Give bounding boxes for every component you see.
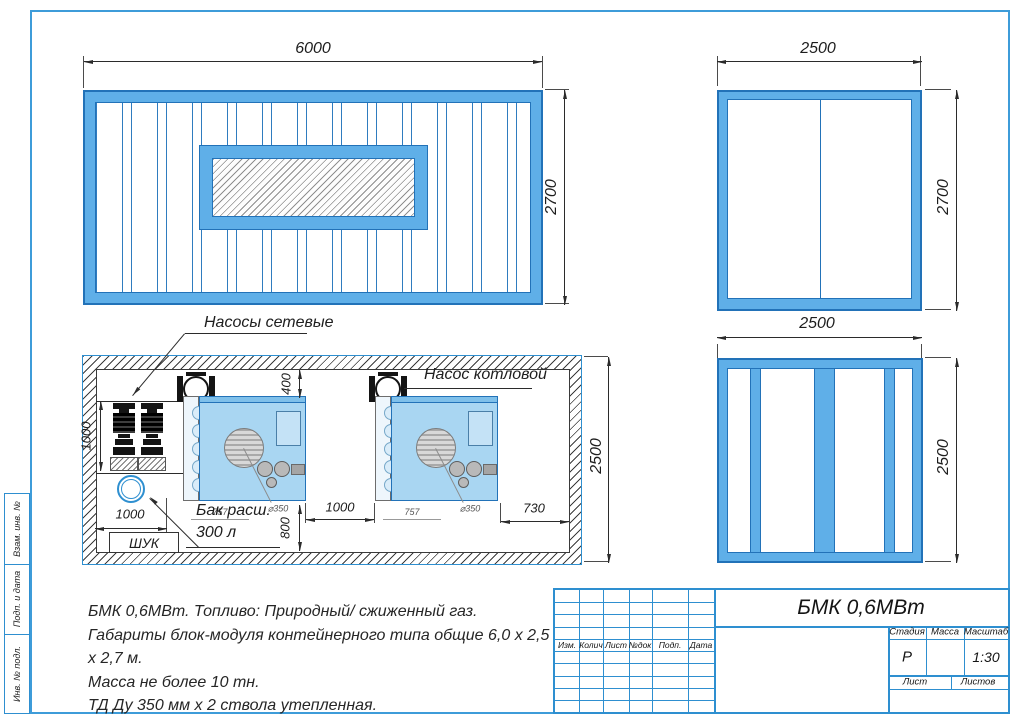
boiler-top-rail (392, 397, 497, 403)
control-box (276, 411, 301, 446)
note-line: Габариты блок-модуля контейнерного типа … (88, 624, 558, 671)
side-panel-area (727, 368, 913, 553)
extension-line (925, 89, 951, 90)
title-block-line (888, 639, 1008, 640)
side-view-panels (717, 358, 923, 563)
dim-between-boilers: 1000 (326, 500, 355, 515)
extension-line (925, 561, 951, 562)
label-underline (186, 547, 280, 548)
dim-boiler-top-gap: 400 (279, 373, 294, 395)
control-box (468, 411, 493, 446)
extension-line (584, 561, 608, 562)
dim-right-gap: 730 (523, 501, 545, 516)
boiler-top-rail (200, 397, 305, 403)
dim-line-tank-offset (95, 528, 167, 529)
burner-arm (483, 464, 497, 475)
dim-tank-offset: 1000 (116, 507, 145, 522)
dim-side-top-width: 2500 (800, 40, 836, 58)
sheets-label: Листов (961, 677, 996, 688)
extension-line (584, 356, 608, 357)
title-block: Изм. Колич Лист №док Подп. Дата БМК 0,6М… (553, 588, 1010, 714)
dim-line-front-width (84, 61, 542, 62)
title-block-line (926, 626, 927, 675)
rev-col-ndok: №док (629, 640, 652, 650)
dim-side-bottom-height: 2500 (935, 439, 953, 475)
title-block-line (555, 700, 714, 701)
dim-line-boiler-bottom-gap (299, 505, 300, 551)
notes-block: БМК 0,6МВт. Топливо: Природный/ сжиженны… (88, 600, 558, 718)
dim-boiler-bottom-gap: 800 (278, 517, 293, 539)
control-cabinet-label: ШУК (129, 535, 159, 551)
dim-flue-diameter: ⌀350 (268, 504, 288, 515)
network-pump-1 (113, 403, 135, 455)
rev-col-kolich: Колич (579, 640, 602, 650)
boiler-unit-2: 757 ⌀350 (375, 373, 498, 523)
title-block-line (555, 676, 714, 677)
title-block-line (714, 590, 716, 712)
side-view-doors (717, 90, 922, 311)
panel-post (750, 369, 761, 552)
dim-line-side-top-height (956, 90, 957, 311)
title-block-line (555, 602, 714, 603)
boiler-unit-1: 757 ⌀350 (183, 373, 306, 523)
burner-part (449, 461, 465, 477)
pump-base-pad (138, 457, 166, 471)
rev-col-izm: Изм. (558, 640, 576, 650)
extension-line (717, 344, 718, 358)
side-view-door-panels (727, 99, 912, 299)
stamp-vzam-inv: Взам. инв. № (4, 493, 30, 565)
tank-label-line1: Бак расш. (196, 502, 271, 520)
rev-col-data: Дата (690, 640, 712, 650)
dim-side-top-height: 2700 (935, 179, 953, 215)
dim-side-bottom-width: 2500 (799, 315, 835, 333)
extension-line (374, 503, 375, 523)
label-underline (185, 333, 307, 334)
burner-part (466, 461, 482, 477)
dim-line-boiler-top-gap (299, 370, 300, 398)
extension-line (921, 344, 922, 358)
sheet-label: Лист (903, 677, 927, 688)
dim-plan-height: 2500 (588, 438, 606, 474)
stage-label: Стадия (889, 627, 925, 638)
dim-line-between-boilers (306, 519, 374, 520)
network-pumps-label: Насосы сетевые (204, 314, 334, 332)
front-view-louver-grille (212, 158, 415, 217)
stamp-label: Взам. инв. № (12, 501, 22, 557)
rev-col-list: Лист (605, 640, 627, 650)
dim-pump-offset: 1000 (79, 422, 94, 451)
title-block-line (555, 651, 714, 652)
dim-front-height: 2700 (543, 179, 561, 215)
scale-label: Масштаб (964, 627, 1008, 638)
pump-base-pad (110, 457, 138, 471)
dim-line-right-gap (501, 521, 569, 522)
burner-part (266, 477, 277, 488)
front-view (83, 90, 543, 305)
dim-tick-line (383, 519, 441, 520)
dim-line-side-bottom-width (717, 337, 922, 338)
scale-value: 1:30 (972, 649, 999, 665)
note-line: ТД Ду 350 мм х 2 ствола утепленная. (88, 694, 558, 718)
extension-line (925, 357, 951, 358)
title-block-line (555, 627, 714, 628)
network-pump-2 (141, 403, 163, 455)
mass-label: Масса (931, 627, 959, 638)
note-line: Масса не более 10 тн. (88, 671, 558, 695)
panel-post (884, 369, 895, 552)
plan-view: ШУК 757 ⌀350 (82, 355, 582, 565)
burner-part (458, 477, 469, 488)
title-block-line (555, 614, 714, 615)
burner-part (274, 461, 290, 477)
tank-label-line2: 300 л (196, 524, 236, 542)
dim-line-front-height (564, 90, 565, 305)
panel-post-center (814, 369, 835, 552)
dim-line-plan-height (608, 357, 609, 563)
dim-front-width: 6000 (295, 40, 331, 58)
control-cabinet-box: ШУК (109, 532, 179, 553)
dim-boiler-width: 757 (404, 507, 419, 517)
burner-part (257, 461, 273, 477)
dim-line-side-top-width (717, 61, 922, 62)
note-line: БМК 0,6МВт. Топливо: Природный/ сжиженны… (88, 600, 558, 624)
stamp-podp-data: Подп. и дата (4, 564, 30, 636)
extension-line (542, 56, 543, 88)
burner-arm (291, 464, 305, 475)
title-block-line (888, 689, 1008, 690)
dim-line-side-bottom-height (956, 358, 957, 563)
boiler-pump-label: Насос котловой (424, 366, 547, 384)
rev-col-podp: Подп. (659, 640, 682, 650)
drawing-sheet: 6000 2700 2500 2700 2500 2500 (0, 0, 1024, 725)
title-block-line (555, 688, 714, 689)
stamp-label: Инв. № подл. (12, 646, 22, 702)
stamp-inv-podl: Инв. № подл. (4, 634, 30, 715)
title-block-line (951, 675, 952, 689)
stage-value: Р (902, 649, 912, 666)
dim-flue-diameter: ⌀350 (460, 504, 480, 515)
label-underline (404, 388, 532, 389)
stamp-label: Подп. и дата (12, 571, 22, 627)
extension-line (925, 309, 951, 310)
title-block-line (555, 663, 714, 664)
door-split-line (820, 100, 821, 298)
drawing-title: БМК 0,6МВт (797, 596, 925, 620)
dim-line-pump-offset (100, 401, 101, 471)
expansion-tank (117, 475, 145, 503)
